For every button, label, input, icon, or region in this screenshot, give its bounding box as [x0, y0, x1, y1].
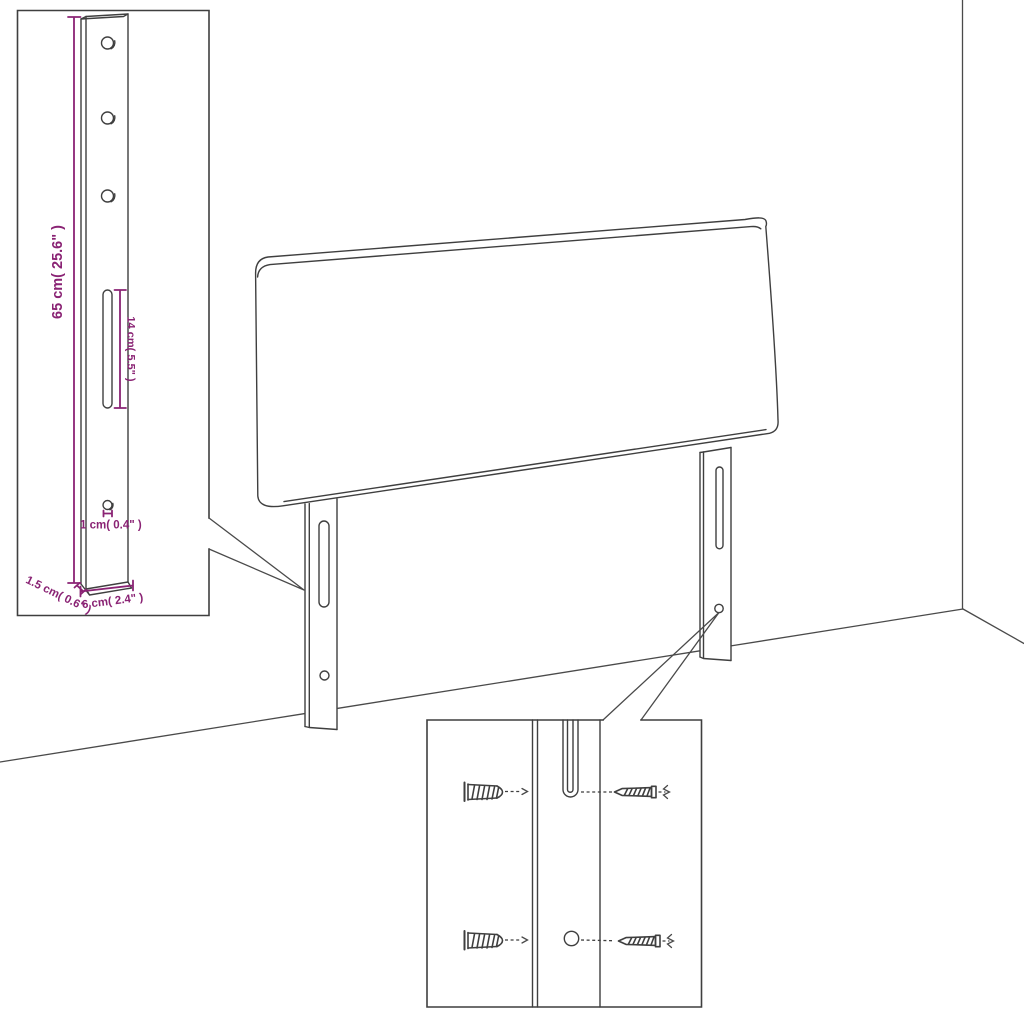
room-corner: [0, 0, 1024, 762]
bracket-hole-3: [102, 190, 115, 202]
hardware-items: [465, 783, 674, 950]
dim-label-bracket-height: 65 cm( 25.6" ): [50, 225, 66, 319]
leg-detail-drawing: [533, 720, 601, 1007]
bracket-small-hole: [103, 501, 112, 510]
bracket-detail-inset: 65 cm( 25.6" ) 14 cm( 5.5" ) 1 cm( 0.4" …: [18, 11, 305, 617]
diagram-canvas: 65 cm( 25.6" ) 14 cm( 5.5" ) 1 cm( 0.4" …: [0, 0, 1024, 1024]
leg-detail-slot-outer: [563, 720, 578, 797]
left-leg-slot: [319, 521, 329, 607]
wall-plug-bottom: [465, 931, 528, 950]
bracket-callout-lines: [209, 518, 304, 590]
floor-line-right: [963, 609, 1024, 644]
dim-line-height: [68, 17, 81, 583]
right-leg-hole: [715, 604, 723, 612]
dim-line-hole: [104, 511, 113, 517]
wall-plug-top: [465, 783, 528, 802]
screw-top: [615, 786, 670, 799]
bracket-hole-1: [102, 37, 115, 49]
floor-line-left: [0, 609, 963, 762]
right-leg-bottom-edge: [700, 657, 731, 661]
screw-bottom-guide-dashes: [581, 940, 612, 941]
dim-label-hole-diameter: 1 cm( 0.4" ): [80, 520, 142, 532]
right-leg-slot: [716, 467, 723, 549]
leg-detail-slot-inner: [568, 720, 574, 792]
dim-line-slot: [115, 290, 127, 408]
right-leg-top-edge: [700, 448, 731, 453]
hardware-detail-inset: [427, 613, 719, 1008]
right-leg: [700, 448, 731, 661]
left-leg-hole: [320, 671, 329, 680]
bracket-hole-2: [102, 112, 115, 124]
bracket-dimensions: 65 cm( 25.6" ) 14 cm( 5.5" ) 1 cm( 0.4" …: [24, 17, 145, 616]
dim-label-slot-length: 14 cm( 5.5" ): [125, 316, 137, 381]
leg-detail-hole: [564, 931, 578, 945]
left-leg: [305, 499, 337, 730]
hardware-callout-lines: [603, 613, 719, 721]
product-dimension-diagram: 65 cm( 25.6" ) 14 cm( 5.5" ) 1 cm( 0.4" …: [0, 0, 1024, 1024]
hardware-inset-border: [427, 720, 702, 1007]
left-leg-bottom-edge: [305, 727, 337, 730]
panel-bottom-edge-inner: [284, 430, 766, 502]
bracket-drawing: [81, 14, 132, 595]
bracket-slot: [103, 290, 112, 408]
bracket-top-edges: [81, 14, 128, 19]
screw-bottom: [619, 935, 674, 948]
